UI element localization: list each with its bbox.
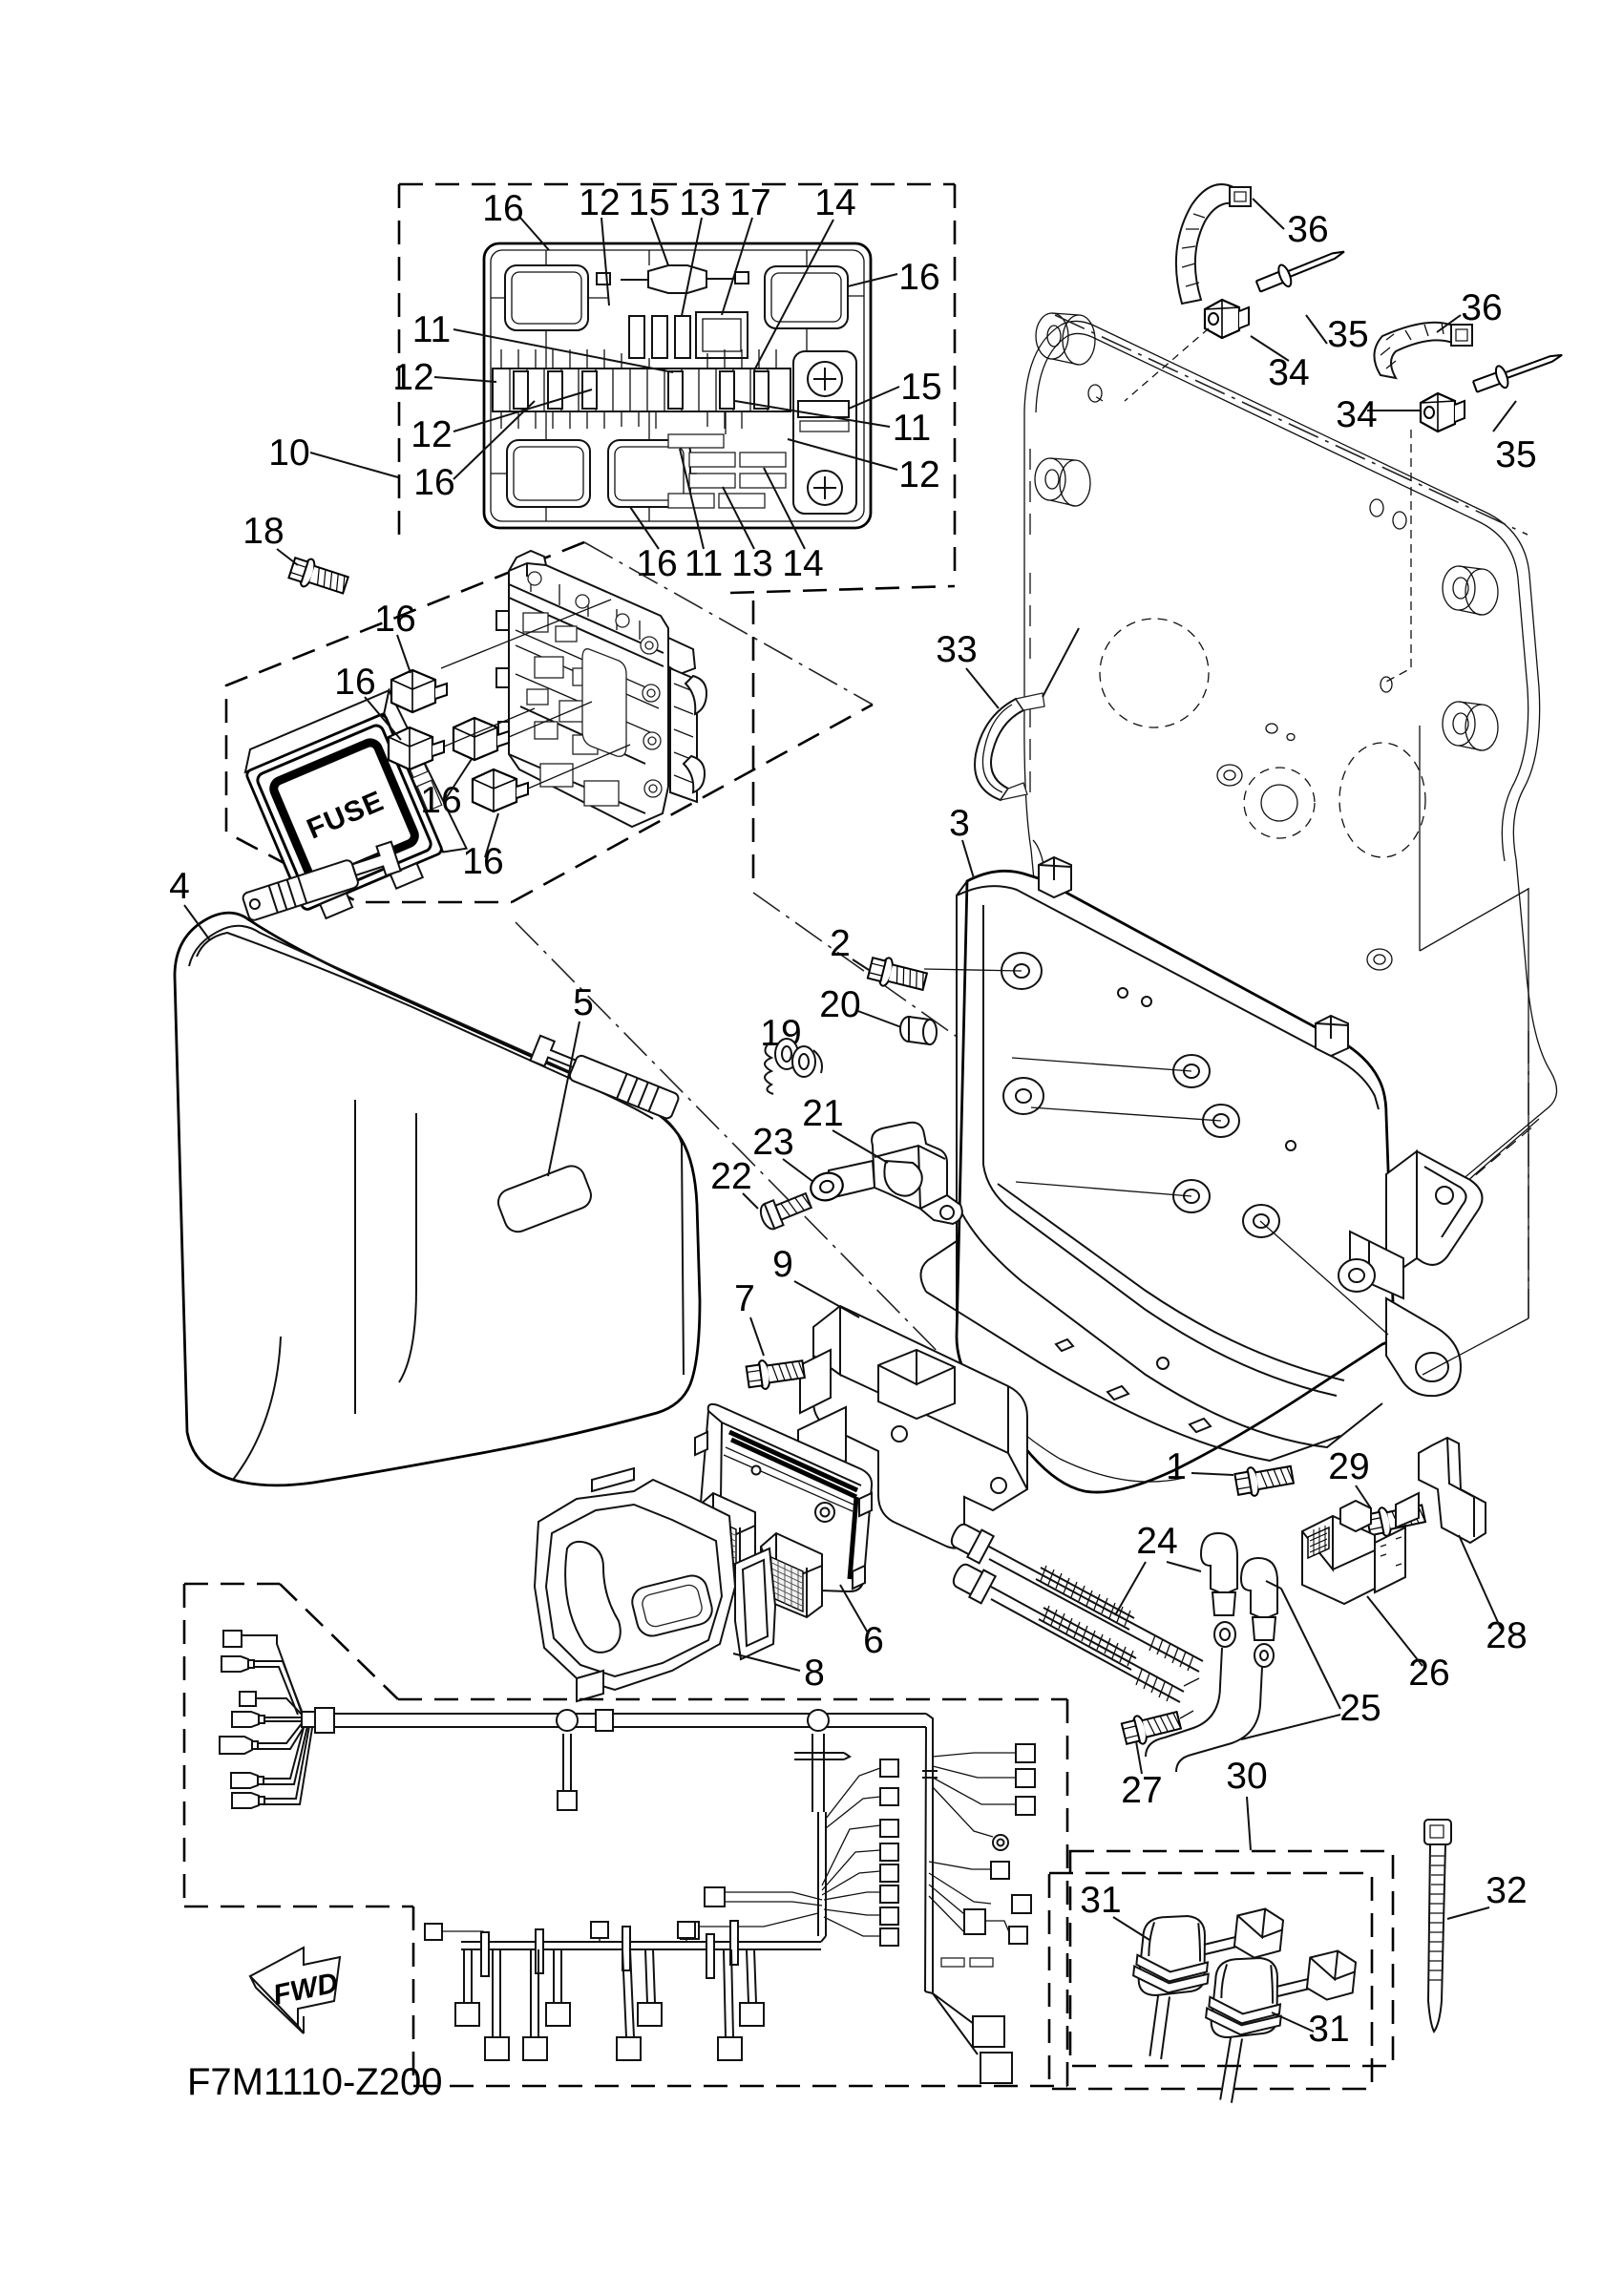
svg-text:31: 31 [1080, 1880, 1121, 1921]
svg-text:16: 16 [374, 599, 415, 640]
svg-text:35: 35 [1327, 314, 1368, 355]
svg-text:16: 16 [334, 662, 375, 703]
svg-text:30: 30 [1226, 1756, 1267, 1797]
svg-text:12: 12 [579, 182, 620, 223]
svg-text:28: 28 [1486, 1615, 1527, 1656]
svg-text:31: 31 [1308, 2009, 1349, 2050]
svg-text:35: 35 [1495, 434, 1536, 475]
svg-text:36: 36 [1287, 209, 1328, 250]
svg-text:11: 11 [893, 408, 932, 449]
svg-text:12: 12 [411, 414, 452, 455]
svg-text:14: 14 [782, 543, 823, 584]
svg-text:14: 14 [814, 182, 855, 223]
svg-text:24: 24 [1136, 1521, 1177, 1562]
svg-text:13: 13 [731, 543, 772, 584]
svg-text:32: 32 [1486, 1870, 1527, 1911]
svg-text:29: 29 [1328, 1446, 1369, 1487]
svg-text:16: 16 [462, 841, 503, 882]
svg-text:16: 16 [413, 462, 454, 503]
svg-text:23: 23 [752, 1122, 793, 1163]
svg-text:33: 33 [936, 629, 977, 670]
svg-text:1: 1 [1166, 1446, 1187, 1487]
svg-text:22: 22 [710, 1156, 751, 1197]
svg-text:16: 16 [898, 257, 939, 298]
svg-text:6: 6 [863, 1620, 884, 1661]
svg-text:7: 7 [734, 1278, 755, 1319]
svg-text:25: 25 [1339, 1688, 1381, 1729]
svg-text:5: 5 [573, 982, 594, 1023]
svg-text:27: 27 [1121, 1770, 1162, 1811]
svg-text:12: 12 [898, 454, 939, 495]
svg-text:26: 26 [1408, 1653, 1449, 1694]
svg-text:11: 11 [412, 309, 452, 350]
svg-text:4: 4 [169, 866, 190, 907]
svg-text:3: 3 [949, 803, 970, 844]
svg-text:12: 12 [392, 357, 433, 398]
svg-text:2: 2 [830, 923, 851, 964]
svg-text:15: 15 [628, 182, 669, 223]
svg-text:20: 20 [819, 984, 860, 1025]
svg-text:21: 21 [802, 1093, 843, 1134]
svg-text:8: 8 [804, 1653, 825, 1694]
svg-text:36: 36 [1461, 287, 1502, 328]
svg-text:15: 15 [900, 367, 941, 408]
svg-text:16: 16 [482, 188, 523, 229]
svg-text:18: 18 [242, 511, 284, 552]
svg-text:11: 11 [685, 543, 724, 584]
svg-text:34: 34 [1336, 394, 1377, 435]
svg-text:10: 10 [268, 432, 309, 474]
svg-text:9: 9 [772, 1244, 793, 1285]
svg-text:16: 16 [420, 780, 461, 821]
svg-text:16: 16 [636, 543, 677, 584]
svg-text:F7M1110-Z200: F7M1110-Z200 [187, 2061, 443, 2103]
svg-text:13: 13 [679, 182, 720, 223]
svg-text:17: 17 [729, 182, 770, 223]
svg-text:34: 34 [1268, 352, 1309, 393]
